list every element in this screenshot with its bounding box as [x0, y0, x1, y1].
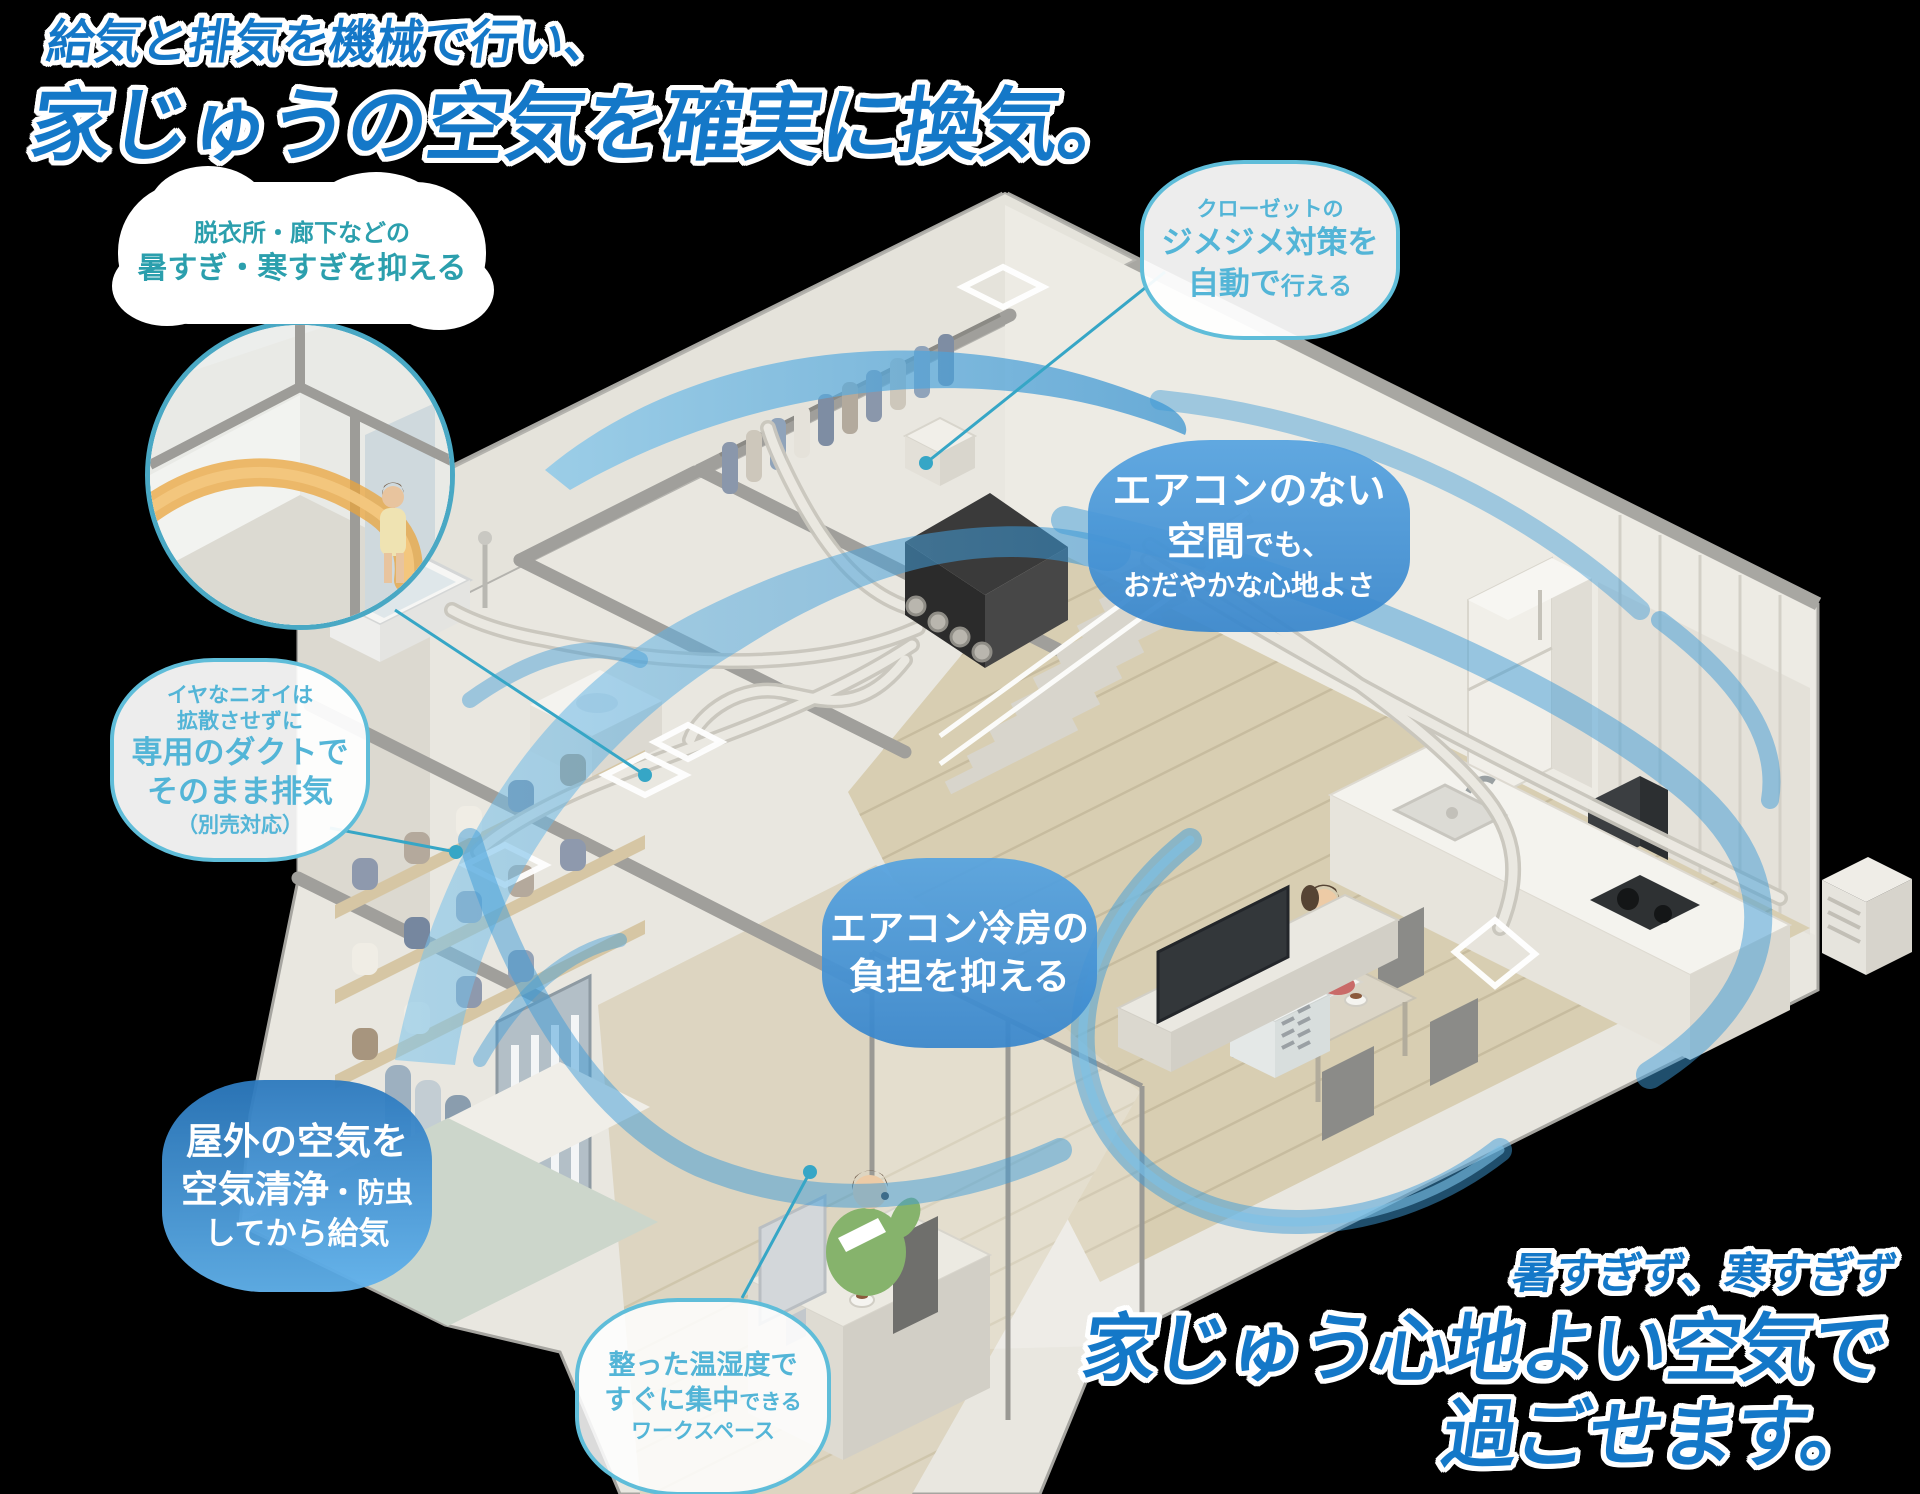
closet-line-3-big: 自動で [1188, 266, 1281, 302]
leader-dot-workspace [803, 1165, 817, 1179]
closet-line-3-small: 行える [1281, 272, 1352, 300]
callout-workspace: 整った温湿度で すぐに集中できる ワークスペース [575, 1298, 831, 1494]
callout-dressing-room: 脱衣所・廊下などの 暑すぎ・寒すぎを抑える [118, 182, 486, 324]
odor-line-3: 専用のダクトで [132, 734, 349, 773]
dressing-room-inset [145, 320, 455, 630]
odor-line-4: そのまま排気 [147, 773, 333, 812]
infographic-canvas: 給気と排気を機械で行い、 家じゅうの空気を確実に換気。 暑すぎず、寒すぎず 家じ… [0, 0, 1920, 1494]
coffee-cup [1345, 993, 1367, 1006]
cooling-line-2: 負担を抑える [849, 953, 1070, 1001]
outdoor-line-2-small: ・防虫 [329, 1176, 413, 1209]
closing-line-3: 過ごせます。 [1065, 1393, 1880, 1478]
dressing-room-scene [150, 325, 455, 630]
closet-line-1: クローゼットの [1197, 196, 1344, 223]
callout-odor-exhaust: イヤなニオイは 拡散させずに 専用のダクトで そのまま排気 （別売対応） [110, 658, 370, 862]
closing-line-1: 暑すぎず、寒すぎず [1090, 1250, 1900, 1299]
no-aircon-line-1: エアコンのない [1112, 467, 1385, 518]
callout-aircon-cooling: エアコン冷房の 負担を抑える [822, 858, 1097, 1048]
dressing-line-2: 暑すぎ・寒すぎを抑える [137, 249, 466, 290]
leader-dot-odor [449, 845, 463, 859]
workspace-line-2-big: すぐに集中 [604, 1385, 739, 1416]
workspace-line-3: ワークスペース [631, 1418, 775, 1445]
outdoor-unit [1822, 857, 1912, 975]
callout-closet: クローゼットの ジメジメ対策を 自動で行える [1140, 160, 1400, 340]
outdoor-line-3: してから給気 [204, 1214, 389, 1254]
no-aircon-line-2-small: でも、 [1245, 528, 1331, 562]
no-aircon-line-3: おだやかな心地よさ [1123, 568, 1375, 604]
title-line-1: 給気と排気を機械で行い、 [43, 16, 1153, 70]
workspace-line-1: 整った温湿度で [609, 1348, 798, 1383]
callout-no-aircon: エアコンのない 空間でも、 おだやかな心地よさ [1088, 440, 1410, 632]
workspace-line-2-small: できる [739, 1390, 802, 1414]
closet-line-2: ジメジメ対策を [1162, 223, 1379, 263]
odor-line-1: イヤなニオイは [167, 682, 313, 708]
no-aircon-line-2-big: 空間 [1167, 520, 1245, 565]
leader-dot-closet [919, 456, 933, 470]
page-title: 給気と排気を機械で行い、 家じゅうの空気を確実に換気。 [25, 16, 1153, 172]
dressing-line-1: 脱衣所・廊下などの [194, 217, 410, 249]
cooling-line-1: エアコン冷房の [830, 905, 1089, 953]
closing-title: 暑すぎず、寒すぎず 家じゅう心地よい空気で 過ごせます。 [1065, 1250, 1900, 1478]
leader-dot-dressing [638, 768, 652, 782]
closing-line-2: 家じゅう心地よい空気で [1077, 1307, 1892, 1392]
odor-line-2: 拡散させずに [177, 708, 303, 734]
outdoor-line-1: 屋外の空気を [186, 1118, 408, 1166]
outdoor-line-2-big: 空気清浄 [181, 1168, 329, 1211]
title-line-2: 家じゅうの空気を確実に換気。 [25, 80, 1144, 172]
odor-line-5: （別売対応） [177, 812, 303, 838]
callout-outdoor-air: 屋外の空気を 空気清浄・防虫 してから給気 [162, 1080, 432, 1292]
